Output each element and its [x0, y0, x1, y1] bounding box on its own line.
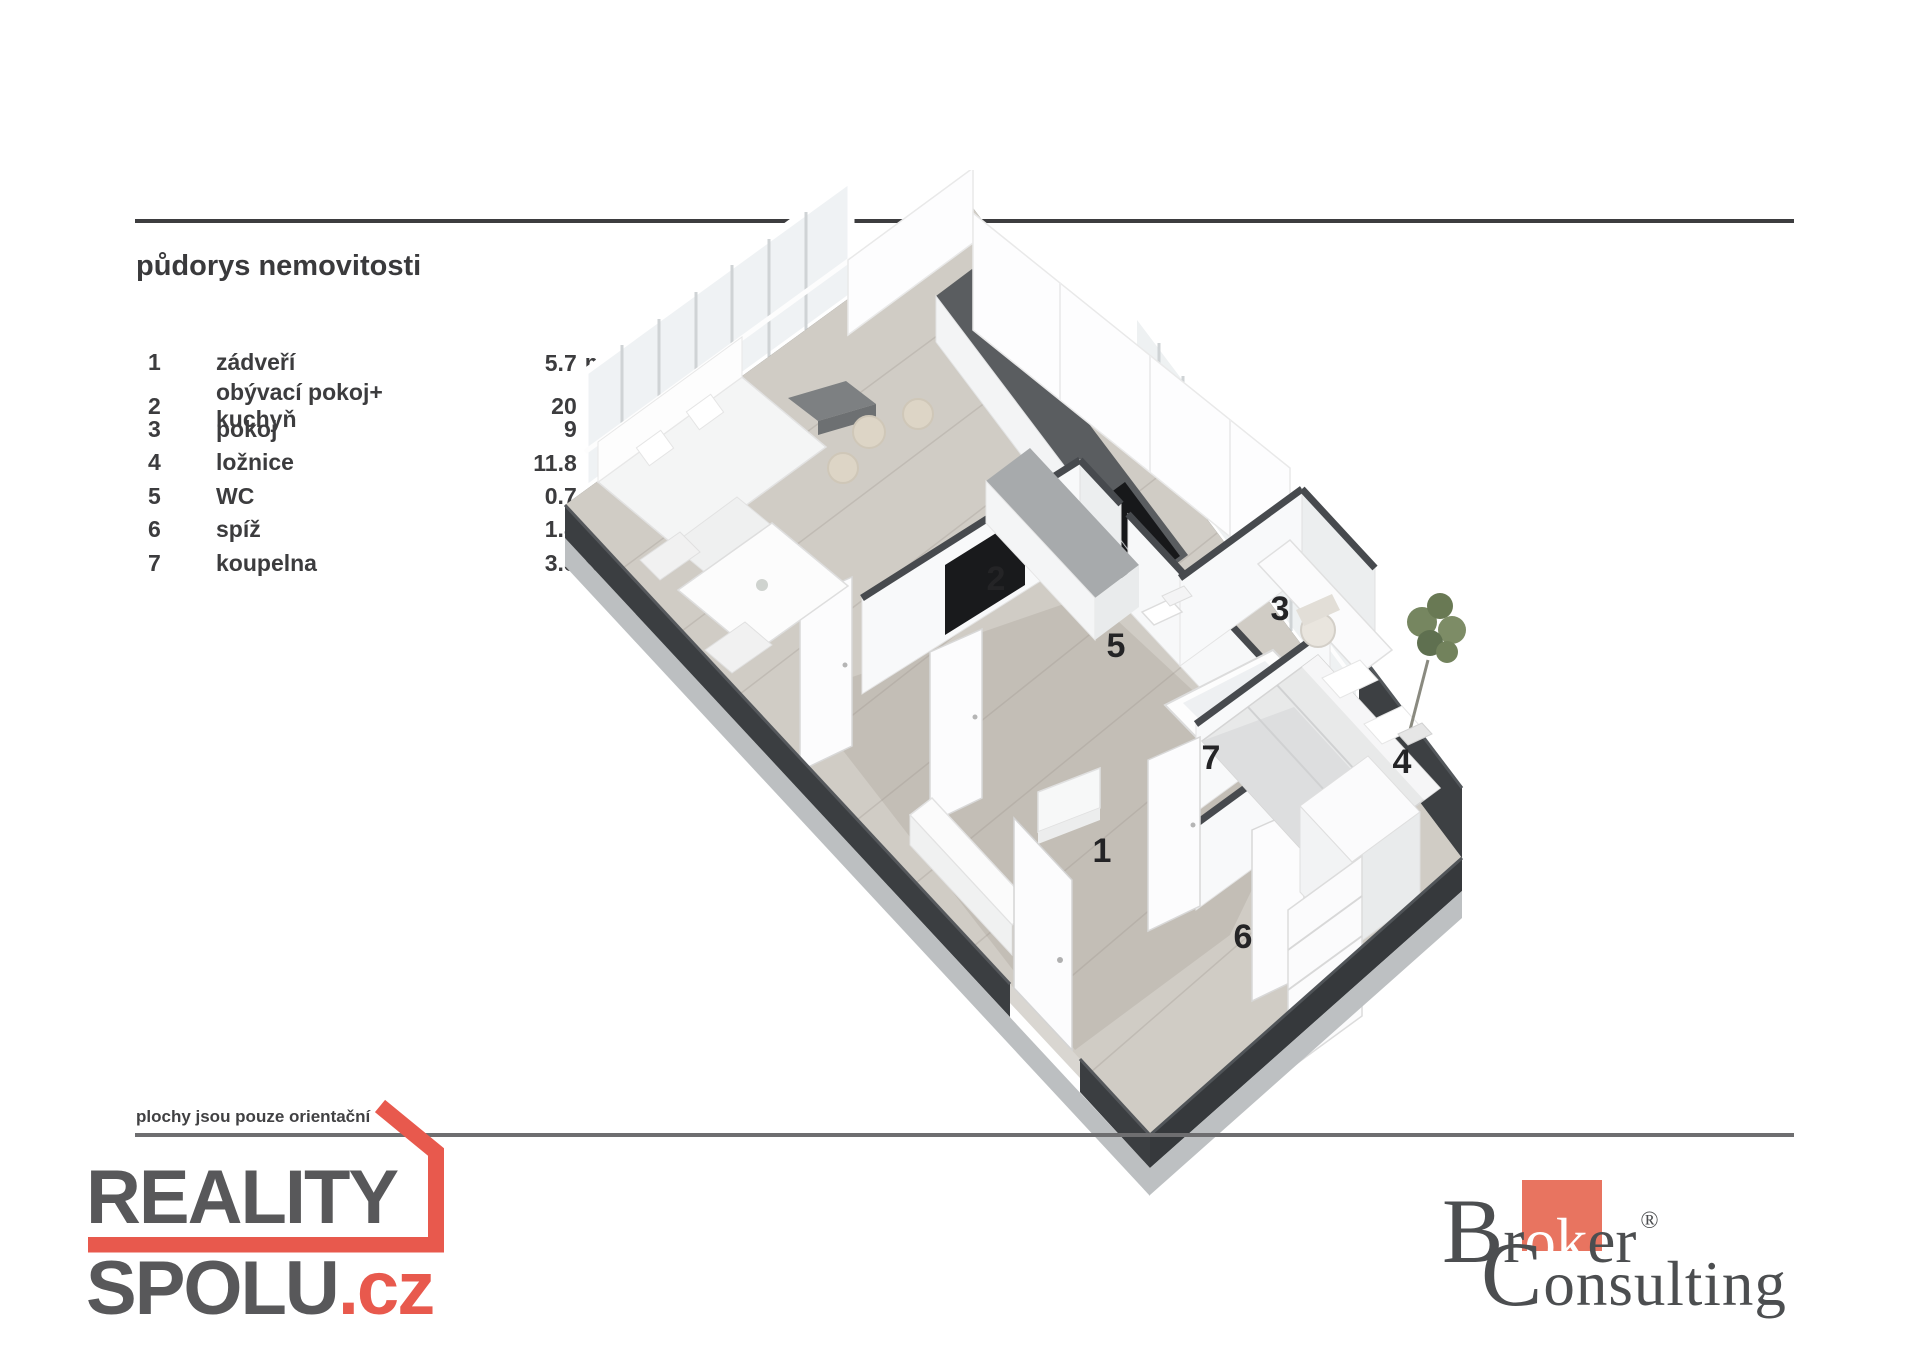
room-name: WC: [216, 483, 455, 510]
floorplan-3d-render: 1 2 3 4 5 6 7: [540, 170, 1500, 1210]
floorplan-page: půdorys nemovitosti 1 zádveří 5.7m2 2 ob…: [0, 0, 1920, 1358]
realityspolu-logo-word1: REALITY: [86, 1160, 397, 1236]
room-name: koupelna: [216, 550, 455, 577]
plan-label-3: 3: [1271, 590, 1290, 628]
realityspolu-logo-tld: .cz: [338, 1246, 433, 1331]
broker-logo-c: C: [1481, 1228, 1543, 1320]
plan-label-2: 2: [987, 560, 1006, 598]
bottom-divider: [135, 1133, 1794, 1137]
plan-label-7: 7: [1202, 739, 1221, 777]
broker-logo-line2: Consulting: [1481, 1228, 1787, 1320]
room-name: zádveří: [216, 349, 455, 376]
disclaimer-text: plochy jsou pouze orientační: [136, 1107, 370, 1127]
realityspolu-logo-word2: SPOLU.cz: [86, 1251, 433, 1327]
room-name: ložnice: [216, 449, 455, 476]
room-name: pokoj: [216, 416, 455, 443]
plan-label-4: 4: [1393, 743, 1412, 781]
room-number: 1: [148, 349, 216, 376]
room-name: spíž: [216, 516, 455, 543]
room-number: 5: [148, 483, 216, 510]
page-title: půdorys nemovitosti: [136, 250, 421, 283]
room-number: 3: [148, 416, 216, 443]
room-number: 6: [148, 516, 216, 543]
room-number: 4: [148, 449, 216, 476]
plan-label-5: 5: [1107, 627, 1126, 665]
plan-label-1: 1: [1093, 832, 1112, 870]
room-number: 7: [148, 550, 216, 577]
plan-label-6: 6: [1234, 918, 1253, 956]
